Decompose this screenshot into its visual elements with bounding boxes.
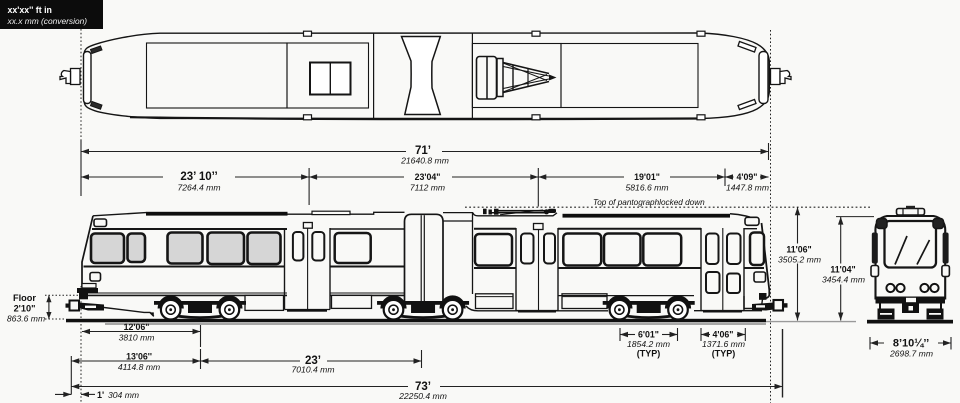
svg-text:4'09": 4'09"	[737, 172, 758, 182]
svg-text:4114.8 mm: 4114.8 mm	[118, 362, 160, 372]
svg-text:11'06": 11'06"	[786, 245, 811, 255]
svg-text:7112 mm: 7112 mm	[410, 183, 445, 193]
svg-text:13'06'': 13'06''	[126, 352, 152, 362]
svg-text:3454.4 mm: 3454.4 mm	[822, 275, 865, 285]
svg-text:Top of pantographlocked down: Top of pantographlocked down	[593, 198, 705, 207]
svg-text:3810 mm: 3810 mm	[119, 333, 155, 343]
svg-text:19'01": 19'01"	[634, 172, 660, 182]
svg-text:23’ 10’’: 23’ 10’’	[180, 171, 217, 183]
svg-text:2'10": 2'10"	[14, 304, 36, 314]
svg-text:7264.4 mm: 7264.4 mm	[178, 183, 221, 193]
svg-text:5816.6 mm: 5816.6 mm	[626, 183, 669, 193]
svg-text:1854.2 mm: 1854.2 mm	[627, 339, 670, 349]
svg-text:1': 1'	[97, 390, 104, 400]
svg-text:304 mm: 304 mm	[108, 390, 139, 400]
svg-text:2698.7 mm: 2698.7 mm	[889, 349, 933, 359]
svg-text:21640.8 mm: 21640.8 mm	[400, 156, 449, 166]
svg-text:22250.4 mm: 22250.4 mm	[398, 391, 447, 401]
svg-text:7010.4 mm: 7010.4 mm	[292, 365, 335, 375]
svg-text:(TYP): (TYP)	[637, 349, 661, 359]
svg-text:xx'xx'' ft in: xx'xx'' ft in	[8, 5, 52, 15]
svg-text:11'04": 11'04"	[830, 265, 855, 275]
svg-text:4'06": 4'06"	[713, 330, 734, 340]
svg-text:(TYP): (TYP)	[712, 349, 736, 359]
svg-text:12'06": 12'06"	[124, 322, 150, 332]
svg-text:1447.8 mm: 1447.8 mm	[726, 183, 769, 193]
svg-text:xx.x mm (conversion): xx.x mm (conversion)	[7, 16, 88, 26]
svg-text:1371.6 mm: 1371.6 mm	[702, 339, 745, 349]
svg-text:3505.2 mm: 3505.2 mm	[778, 255, 821, 265]
svg-text:23'04": 23'04"	[415, 172, 441, 182]
svg-text:6'01": 6'01"	[638, 330, 659, 340]
svg-text:Floor: Floor	[13, 293, 36, 303]
svg-text:863.6 mm: 863.6 mm	[7, 314, 45, 324]
